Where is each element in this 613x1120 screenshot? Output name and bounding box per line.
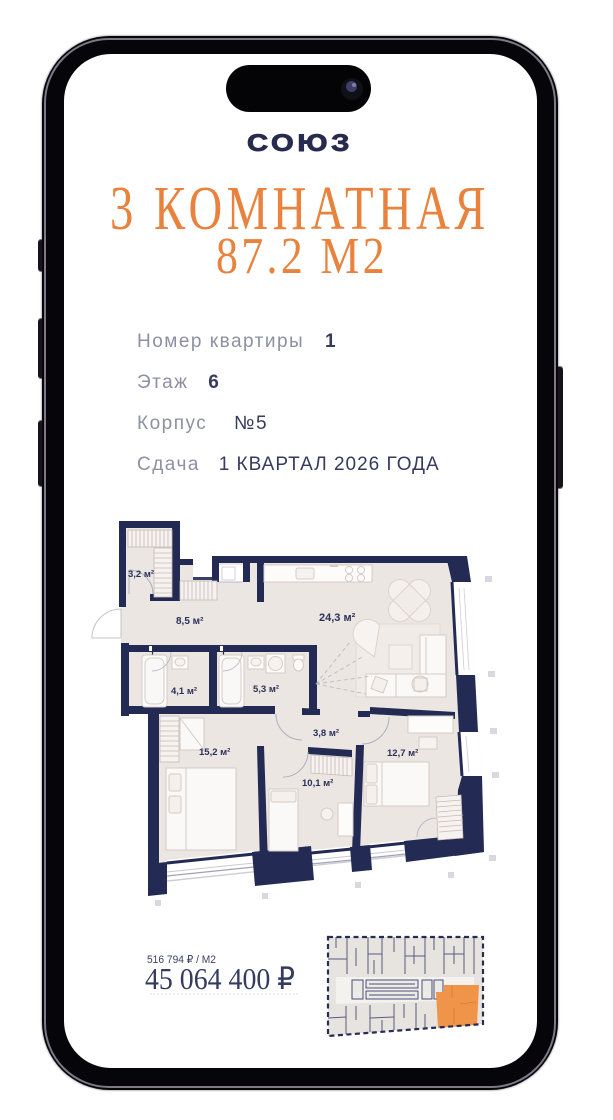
svg-text:3,2 м²: 3,2 м² xyxy=(128,569,154,580)
svg-text:5,3 м²: 5,3 м² xyxy=(253,684,279,695)
svg-text:СОЮЗ: СОЮЗ xyxy=(247,130,353,157)
svg-text:45 064 400 ₽: 45 064 400 ₽ xyxy=(145,961,295,996)
svg-text:8,5 м²: 8,5 м² xyxy=(176,616,204,627)
svg-text:10,1 м²: 10,1 м² xyxy=(302,778,333,789)
svg-text:4,1 м²: 4,1 м² xyxy=(171,686,197,697)
svg-text:15,2 м²: 15,2 м² xyxy=(199,747,230,758)
svg-text:3,8 м²: 3,8 м² xyxy=(313,728,339,739)
svg-text:87.2 М2: 87.2 М2 xyxy=(216,228,388,285)
svg-text:24,3 м²: 24,3 м² xyxy=(319,612,356,624)
svg-text:12,7 м²: 12,7 м² xyxy=(387,748,418,759)
